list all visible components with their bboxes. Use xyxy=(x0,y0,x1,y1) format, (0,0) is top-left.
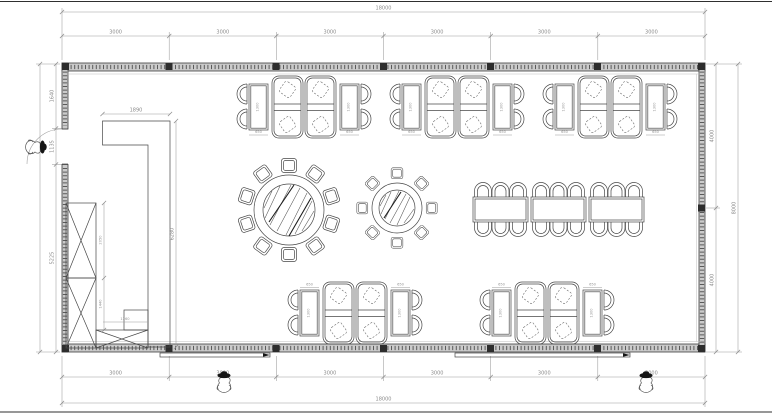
dim-top-seg-1: 3000 xyxy=(109,30,122,36)
floor-plan-canvas: 18000 3000 3000 3000 3000 3000 3000 3000 xyxy=(0,0,772,414)
entry-door xyxy=(27,129,68,164)
dimensions-top: 18000 3000 3000 3000 3000 3000 3000 xyxy=(60,6,707,61)
person-figures xyxy=(26,140,654,393)
person-figure-bottom-right xyxy=(639,371,653,392)
dim-top-seg-3: 3000 xyxy=(324,30,337,36)
dim-table-1300: 1300 xyxy=(562,102,566,112)
booth-group-top-dims: 650 650 650 650 650 650 1300 1300 1300 1… xyxy=(249,102,665,135)
dim-cabinet-upper: 2050 xyxy=(99,235,103,245)
banquet-table xyxy=(473,197,528,222)
dim-table-650: 650 xyxy=(397,283,405,287)
dim-table-1300: 1300 xyxy=(347,102,351,112)
dim-table-650: 650 xyxy=(255,130,263,134)
dim-top-seg-2: 3000 xyxy=(216,30,229,36)
dim-top-overall: 18000 xyxy=(376,6,392,12)
dimensions-left: 1640 1135 5225 xyxy=(36,62,62,354)
dimensions-right: 4000 4000 8000 xyxy=(706,62,742,354)
dim-table-650: 650 xyxy=(408,130,416,134)
dim-top-seg-5: 3000 xyxy=(538,30,551,36)
dim-table-1300: 1300 xyxy=(409,102,413,112)
dim-table-650: 650 xyxy=(652,130,660,134)
dim-table-1300: 1300 xyxy=(500,102,504,112)
dim-left-seg-1: 1640 xyxy=(50,90,56,103)
dim-table-650: 650 xyxy=(589,283,597,287)
banquet-tables xyxy=(473,183,644,237)
dim-top-seg-6: 3000 xyxy=(645,30,658,36)
sliding-track xyxy=(160,353,630,357)
dim-table-1300: 1300 xyxy=(307,308,311,318)
dim-table-1300: 1300 xyxy=(256,102,260,112)
dim-bottom-seg-3: 3000 xyxy=(324,371,337,377)
dim-right-seg-1: 4000 xyxy=(710,130,716,143)
dim-cabinet-width: 1260 xyxy=(120,317,130,321)
booth-group-bottom-dims: 650 650 650 650 1300 1300 1300 1300 xyxy=(300,283,602,318)
dim-table-1300: 1300 xyxy=(398,308,402,318)
round-table-large xyxy=(238,159,341,262)
bar-partition: 1890 6280 xyxy=(100,108,178,350)
dim-cabinet-lower: 1440 xyxy=(99,299,103,309)
dim-top-seg-4: 3000 xyxy=(431,30,444,36)
dim-bottom-seg-4: 3000 xyxy=(431,371,444,377)
dim-table-1300: 1300 xyxy=(653,102,657,112)
dim-table-1300: 1300 xyxy=(590,308,594,318)
dimensions-bottom: 3000 3000 3000 3000 3000 3000 18000 xyxy=(60,356,707,407)
dim-right-overall: 8000 xyxy=(732,202,738,215)
dim-table-650: 650 xyxy=(306,283,314,287)
dim-partition-width: 1890 xyxy=(130,108,143,114)
floor-plan-drawing: 18000 3000 3000 3000 3000 3000 3000 3000 xyxy=(0,0,772,414)
dim-left-seg-3: 5225 xyxy=(50,252,56,265)
booth-groups-bottom xyxy=(288,282,614,344)
dim-bottom-overall: 18000 xyxy=(376,397,392,403)
person-figure-bottom-left xyxy=(217,371,231,392)
dim-partition-height: 6280 xyxy=(170,228,176,241)
booth-groups-top xyxy=(237,76,677,138)
dim-left-seg-2: 1135 xyxy=(50,140,56,153)
round-table-small xyxy=(357,168,437,248)
banquet-table xyxy=(531,197,586,222)
dim-table-650: 650 xyxy=(499,130,507,134)
banquet-table xyxy=(589,197,644,222)
cabinets: 2050 1440 1260 xyxy=(66,201,148,348)
dim-table-650: 650 xyxy=(561,130,569,134)
dim-table-1300: 1300 xyxy=(499,308,503,318)
dim-table-650: 650 xyxy=(498,283,506,287)
dim-table-650: 650 xyxy=(346,130,354,134)
dim-bottom-seg-1: 3000 xyxy=(109,371,122,377)
dim-right-seg-2: 4000 xyxy=(710,274,716,287)
dim-bottom-seg-5: 3000 xyxy=(538,371,551,377)
person-figure-door xyxy=(26,140,47,154)
